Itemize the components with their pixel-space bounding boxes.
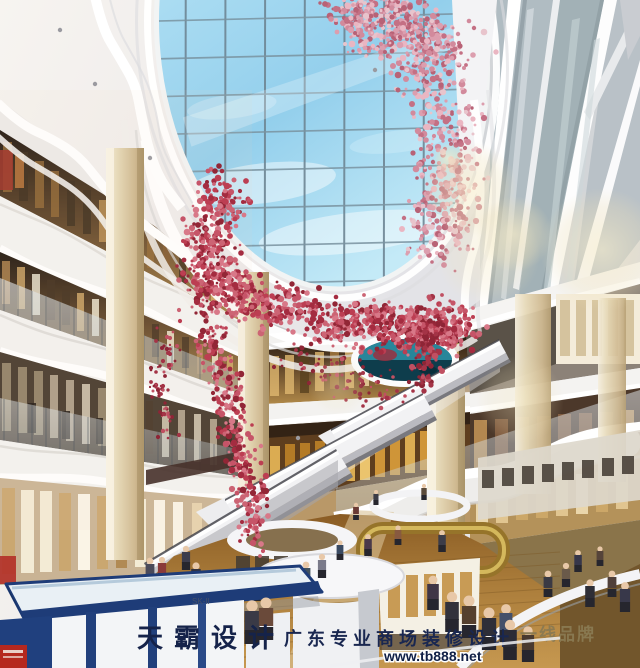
svg-text:天霸设计: 天霸设计 — [137, 623, 285, 653]
svg-text:SK-II: SK-II — [192, 597, 210, 606]
svg-text:www.tb888.net: www.tb888.net — [383, 648, 482, 664]
